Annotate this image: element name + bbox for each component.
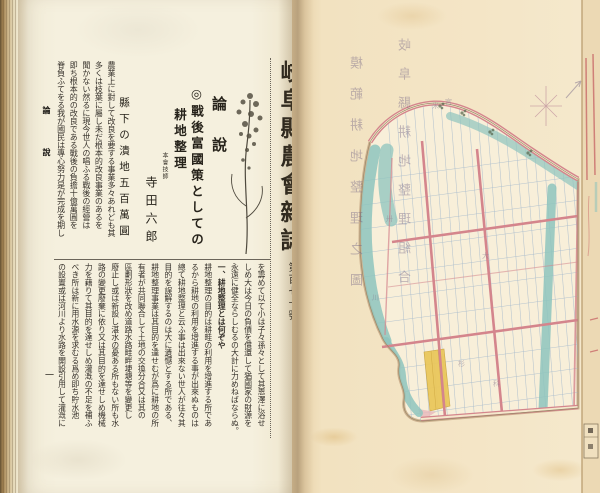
author-name: 寺田六郎	[142, 176, 159, 248]
svg-text:大: 大	[482, 251, 489, 260]
text-column: 廢止し或は新設し湛水の憂ある所もない所も水	[108, 263, 121, 439]
compass-rose	[530, 86, 562, 126]
text-column: 有者が共同聯合して土地の交換分合又は其の	[135, 263, 148, 439]
page-edge-stack	[0, 0, 18, 493]
text-column: 即ち根本的の改良である戰後の負擔十億萬圓を	[67, 61, 80, 258]
band-divider-rule	[54, 259, 270, 260]
text-column: 脊負ふてをる我が國民は專心努力是が完成を期し	[54, 61, 67, 258]
text-column: 永遠に健全ならしむるの大計に力めねばならぬ。	[228, 263, 241, 439]
running-head: 論說	[40, 106, 52, 190]
text-column: 耕地整理事業は其目的を達せむが爲に耕地の所	[148, 263, 161, 439]
text-column: 區劃形狀を改め道路水路畦畔埂塘等を變更し	[122, 263, 135, 439]
svg-text:杉: 杉	[458, 359, 465, 368]
svg-text:米: 米	[432, 101, 439, 110]
text-column: るから耕地の利用を增進する事が出來ぬものは	[188, 263, 201, 439]
article-title-line2: 耕地整理	[170, 108, 188, 172]
showthrough-caption-left: 模範耕地整理之圖	[348, 56, 367, 336]
left-page: 論說 一 岐阜縣農會雜誌 第百七十號 （明治四十年五月廿五日發行） 論說 ◎戰後…	[18, 0, 292, 493]
flower-illustration	[220, 84, 272, 256]
text-column: 多くは枝葉に屬し未だ根本的改良事業のあるを	[92, 61, 105, 258]
author-role: 本會技師	[159, 152, 168, 180]
text-column: 路の變更廢棄に依り又は其目的を達せしめ機械	[95, 263, 108, 439]
text-column: 目的を誤解するのは大に遺憾とする所である、	[162, 263, 175, 439]
text-column: の設置或は河川より水路を開設引用して灌漑に	[55, 263, 68, 439]
text-column: 耕地整理の目的は耕畦の利用を增進する所であ	[202, 263, 215, 439]
text-column: べき所は新に用水源を求むる爲め即ち貯水池	[69, 263, 82, 439]
cadastral-map: 宮 米 大 川 杉 科 卅	[290, 0, 600, 493]
book-photo: 論說 一 岐阜縣農會雜誌 第百七十號 （明治四十年五月廿五日發行） 論說 ◎戰後…	[0, 0, 600, 493]
svg-text:科: 科	[493, 379, 500, 388]
svg-text:卅: 卅	[386, 215, 393, 223]
body-text-upper-band: 農業上に對して改良を要する事業多々あれども其 多くは枝葉に屬し未だ根本的改良事業…	[54, 61, 117, 258]
svg-text:川: 川	[372, 294, 379, 302]
text-column: 總て耕地整理と云ふ事は出來ない世人が往々其	[175, 263, 188, 439]
text-column: しめ大は今日の負債を償還して猶國家の財源を	[241, 263, 254, 439]
text-column: を籌めて以て小は子々孫々として其恩澤に浴せ	[255, 263, 268, 439]
legend-box	[584, 424, 598, 458]
text-subheading: 一、耕地整理とは何ぞや	[215, 263, 228, 439]
text-column: 聞かない然るに現今世人の唱ふる戰後の經營は	[79, 61, 92, 258]
body-text-lower-band: を籌めて以て小は子々孫々として其恩澤に浴せ しめ大は今日の負債を償還して猶國家の…	[54, 263, 268, 439]
side-heading: 縣下の潰地五百萬圓	[116, 97, 130, 241]
showthrough-caption-right: 岐阜縣耕地整理組合	[396, 38, 415, 308]
north-arrow-icon	[566, 81, 581, 98]
text-column: 力を藉りて其目的を達せしめ灌漑の不足を補ふ	[82, 263, 95, 439]
article-title-line1: ◎戰後富國策としての	[187, 86, 205, 249]
text-column: 農業上に對して改良を要する事業多々あれども其	[104, 61, 117, 258]
next-page-edge	[582, 0, 600, 493]
svg-text:宮: 宮	[445, 97, 452, 106]
